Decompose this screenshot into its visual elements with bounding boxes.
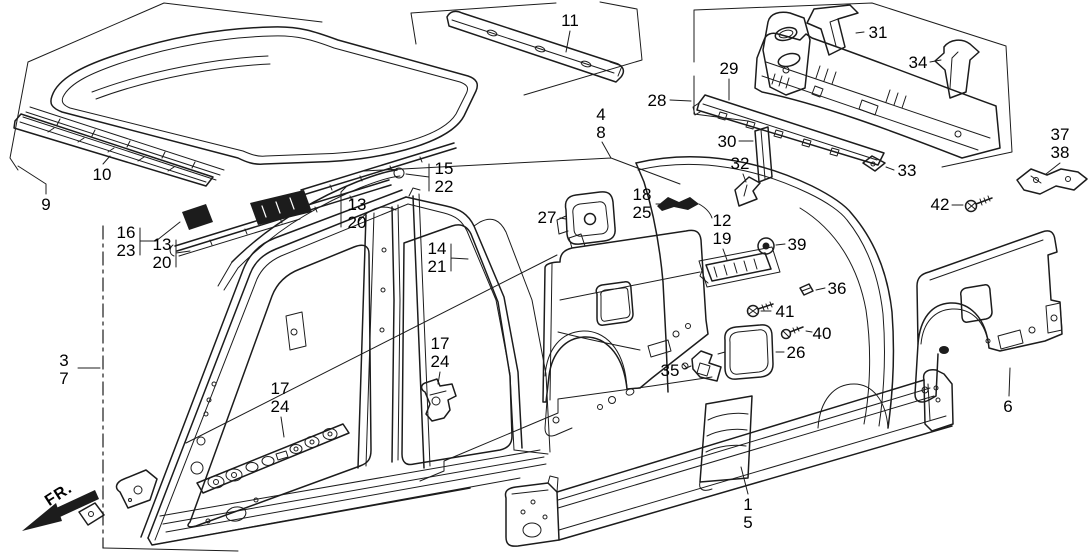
part-number[interactable]: 42 [931, 196, 950, 214]
part-number[interactable]: 8 [596, 124, 605, 142]
callout-9[interactable]: 9 [41, 196, 50, 214]
callout-13-20-b[interactable]: 1320 [348, 196, 367, 232]
callout-29[interactable]: 29 [720, 60, 739, 78]
part-number[interactable]: 16 [117, 224, 136, 242]
part-number[interactable]: 12 [713, 212, 732, 230]
part-number[interactable]: 11 [561, 12, 579, 30]
callout-28[interactable]: 28 [648, 92, 667, 110]
part-number[interactable]: 36 [828, 280, 847, 298]
part-number[interactable]: 23 [117, 242, 136, 260]
part-number[interactable]: 39 [788, 236, 807, 254]
part-number[interactable]: 26 [787, 344, 806, 362]
part-number[interactable]: 30 [718, 133, 737, 151]
part-number[interactable]: 4 [596, 106, 605, 124]
part-number[interactable]: 7 [59, 370, 68, 388]
callout-11[interactable]: 11 [561, 12, 579, 30]
callout-18-25[interactable]: 1825 [633, 186, 652, 222]
callout-40[interactable]: 40 [813, 325, 832, 343]
part-number[interactable]: 22 [435, 178, 454, 196]
part-number[interactable]: 18 [633, 186, 652, 204]
callout-36[interactable]: 36 [828, 280, 847, 298]
part-number[interactable]: 10 [93, 166, 112, 184]
callout-37-38[interactable]: 3738 [1051, 126, 1070, 162]
callout-33[interactable]: 33 [898, 162, 917, 180]
callout-42[interactable]: 42 [931, 196, 950, 214]
callout-1-5[interactable]: 15 [743, 496, 752, 532]
callout-17-24-b[interactable]: 1724 [431, 335, 450, 371]
callout-31[interactable]: 31 [869, 24, 888, 42]
part-number[interactable]: 1 [743, 496, 752, 514]
part-number[interactable]: 29 [720, 60, 739, 78]
part-number[interactable]: 13 [348, 196, 367, 214]
part-number[interactable]: 9 [41, 196, 50, 214]
callout-41[interactable]: 41 [776, 303, 795, 321]
part-number[interactable]: 24 [271, 398, 290, 416]
part-number[interactable]: 40 [813, 325, 832, 343]
part-number[interactable]: 19 [713, 230, 732, 248]
part-number[interactable]: 15 [435, 160, 454, 178]
callout-15-22[interactable]: 1522 [435, 160, 454, 196]
part-number[interactable]: 35 [661, 362, 680, 380]
part-number[interactable]: 21 [428, 258, 447, 276]
callout-39[interactable]: 39 [788, 236, 807, 254]
callout-4-8[interactable]: 48 [596, 106, 605, 142]
part-number[interactable]: 41 [776, 303, 795, 321]
part-number[interactable]: 20 [348, 214, 367, 232]
callout-12-19[interactable]: 1219 [713, 212, 732, 248]
callout-3-7[interactable]: 37 [59, 352, 68, 388]
part-number[interactable]: 5 [743, 514, 752, 532]
callout-6[interactable]: 6 [1003, 398, 1012, 416]
part-number[interactable]: 37 [1051, 126, 1070, 144]
part-number[interactable]: 38 [1051, 144, 1070, 162]
part-number[interactable]: 33 [898, 162, 917, 180]
callout-30[interactable]: 30 [718, 133, 737, 151]
part-number[interactable]: 27 [538, 209, 557, 227]
callout-27[interactable]: 27 [538, 209, 557, 227]
part-number[interactable]: 32 [731, 155, 750, 173]
part-number[interactable]: 31 [869, 24, 888, 42]
part-number[interactable]: 34 [909, 54, 928, 72]
part-number[interactable]: 3 [59, 352, 68, 370]
callout-14-21[interactable]: 1421 [428, 240, 447, 276]
callout-13-20-a[interactable]: 1320 [153, 236, 172, 272]
part-number[interactable]: 17 [431, 335, 450, 353]
callout-34[interactable]: 34 [909, 54, 928, 72]
callout-17-24-a[interactable]: 1724 [271, 380, 290, 416]
callout-10[interactable]: 10 [93, 166, 112, 184]
part-number[interactable]: 13 [153, 236, 172, 254]
callout-35[interactable]: 35 [661, 362, 680, 380]
part-number[interactable]: 17 [271, 380, 290, 398]
parts-diagram: 9101116231320132015221421274828293134303… [0, 0, 1090, 554]
part-number[interactable]: 24 [431, 353, 450, 371]
callout-26[interactable]: 26 [787, 344, 806, 362]
callout-layer: 9101116231320132015221421274828293134303… [0, 0, 1090, 554]
part-number[interactable]: 6 [1003, 398, 1012, 416]
callout-16-23[interactable]: 1623 [117, 224, 136, 260]
part-number[interactable]: 20 [153, 254, 172, 272]
part-number[interactable]: 25 [633, 204, 652, 222]
part-number[interactable]: 28 [648, 92, 667, 110]
part-number[interactable]: 14 [428, 240, 447, 258]
callout-32[interactable]: 32 [731, 155, 750, 173]
